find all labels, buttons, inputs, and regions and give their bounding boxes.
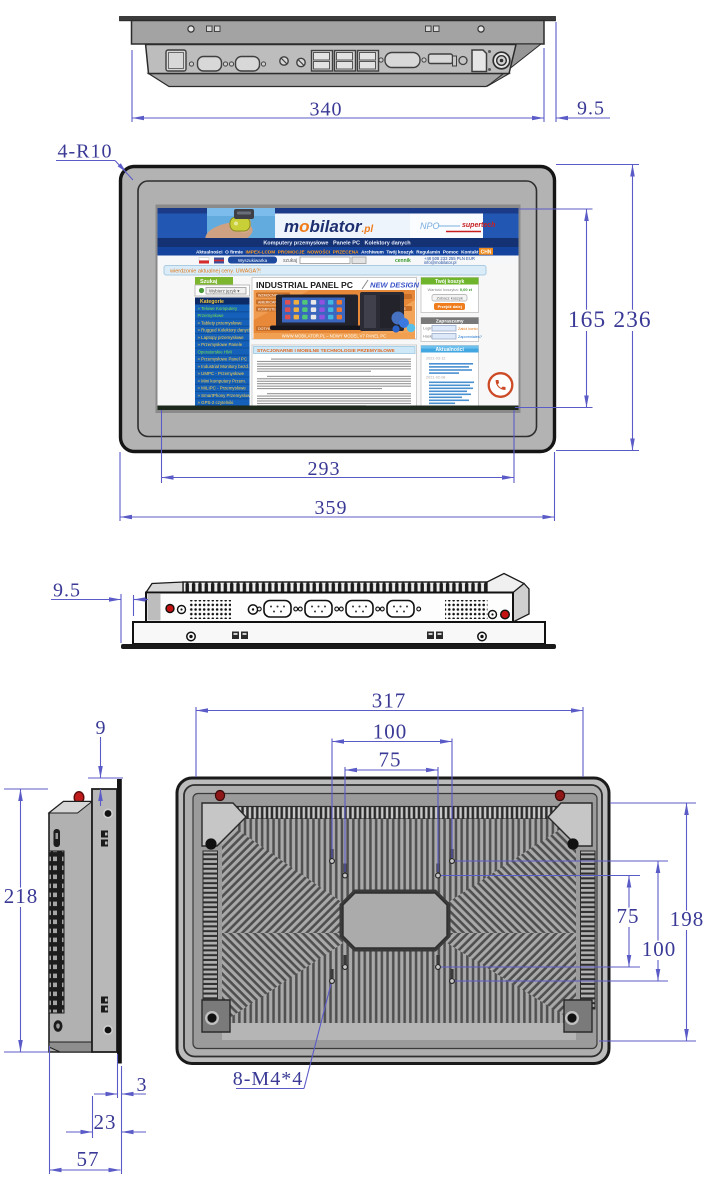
svg-text:Kategorie: Kategorie bbox=[200, 299, 224, 305]
svg-text:» Rugged Kolektory danych: » Rugged Kolektory danych bbox=[198, 328, 252, 333]
svg-text:359: 359 bbox=[315, 497, 348, 519]
svg-text:75: 75 bbox=[379, 748, 402, 772]
svg-text:317: 317 bbox=[372, 689, 407, 713]
svg-text:9.5: 9.5 bbox=[53, 580, 81, 602]
svg-text:57: 57 bbox=[77, 1147, 100, 1171]
svg-text:Zapraszamy: Zapraszamy bbox=[436, 319, 464, 325]
svg-text:» Przemysłowe Panele: » Przemysłowe Panele bbox=[198, 342, 243, 347]
svg-text:» SmartPhony Przemysłowe: » SmartPhony Przemysłowe bbox=[198, 393, 254, 398]
svg-text:INDUSTRIAL PANEL PC: INDUSTRIAL PANEL PC bbox=[256, 280, 353, 290]
svg-text:8-M4*4: 8-M4*4 bbox=[233, 1068, 303, 1090]
svg-text:23: 23 bbox=[94, 1110, 117, 1134]
svg-text:Przemysłowe: Przemysłowe bbox=[198, 313, 225, 318]
svg-text:NPO: NPO bbox=[420, 221, 440, 231]
svg-text:mobilator.pl: mobilator.pl bbox=[284, 217, 373, 236]
svg-text:2021-03-12: 2021-03-12 bbox=[426, 357, 445, 361]
svg-text:218: 218 bbox=[4, 884, 39, 908]
svg-text:Szukaj: Szukaj bbox=[200, 279, 218, 285]
svg-text:info@mobilator.pl: info@mobilator.pl bbox=[424, 260, 456, 265]
svg-text:STACJONARNE I MOBILNE TECHNOLO: STACJONARNE I MOBILNE TECHNOLOGIE PRZEMY… bbox=[257, 348, 395, 354]
svg-text:Przejdź dalej: Przejdź dalej bbox=[438, 304, 462, 309]
svg-text:165: 165 bbox=[568, 307, 606, 333]
svg-text:cennik: cennik bbox=[395, 258, 411, 264]
svg-text:» GPS-2 czytelniki: » GPS-2 czytelniki bbox=[198, 400, 234, 405]
svg-text:Zapomniałeś?: Zapomniałeś? bbox=[458, 335, 482, 339]
svg-text:2021-02-08: 2021-02-08 bbox=[426, 376, 445, 380]
svg-text:» MILIPC - Przemysłowe: » MILIPC - Przemysłowe bbox=[198, 386, 247, 391]
svg-text:Zobacz koszyk: Zobacz koszyk bbox=[436, 295, 462, 300]
svg-text:236: 236 bbox=[613, 307, 651, 333]
svg-text:szukaj: szukaj bbox=[283, 258, 297, 264]
svg-text:3: 3 bbox=[137, 1074, 148, 1096]
svg-text:340: 340 bbox=[310, 99, 343, 121]
svg-text:Twój koszyk: Twój koszyk bbox=[435, 279, 464, 285]
svg-text:» Przemysłowe Panel PC: » Przemysłowe Panel PC bbox=[198, 357, 248, 362]
svg-text:Aktualności O firmie IMPEX-L: Aktualności O firmie IMPEX-LCDM PROMOCJE… bbox=[196, 249, 479, 255]
svg-text:» Tablety przemysłowe: » Tablety przemysłowe bbox=[198, 320, 243, 325]
svg-text:75: 75 bbox=[617, 904, 640, 928]
svg-text:supertech: supertech bbox=[462, 222, 495, 229]
svg-text:9.5: 9.5 bbox=[577, 98, 605, 120]
svg-text:100: 100 bbox=[373, 720, 408, 744]
svg-text:9: 9 bbox=[96, 717, 107, 739]
svg-text:293: 293 bbox=[308, 458, 341, 480]
svg-text:WWW.MOBILATOR.PL – NOWY MODEL: WWW.MOBILATOR.PL – NOWY MODEL V7 PANEL P… bbox=[282, 334, 386, 339]
svg-text:Wybierz język ▾: Wybierz język ▾ bbox=[209, 289, 239, 294]
svg-text:» UMPC - Przemysłowe: » UMPC - Przemysłowe bbox=[198, 371, 245, 376]
svg-text:Aktualności: Aktualności bbox=[436, 347, 465, 353]
svg-text:4-R10: 4-R10 bbox=[58, 141, 113, 163]
svg-text:100: 100 bbox=[642, 937, 677, 961]
svg-text:CHN: CHN bbox=[481, 249, 492, 255]
svg-text:Załóż konto: Załóż konto bbox=[458, 327, 478, 331]
svg-text:Operatorskie HMI: Operatorskie HMI bbox=[198, 349, 232, 354]
svg-text:198: 198 bbox=[670, 907, 705, 931]
svg-text:» Tełowe Komputery: » Tełowe Komputery bbox=[198, 306, 239, 311]
svg-text:Wartość koszyka: 0,00 zł: Wartość koszyka: 0,00 zł bbox=[428, 287, 473, 292]
svg-text:» Laptopy przemysłowe: » Laptopy przemysłowe bbox=[198, 335, 245, 340]
svg-text:AMERICAN: AMERICAN bbox=[258, 301, 277, 305]
svg-text:wierdzonie aktualnej ceny. UWA: wierdzonie aktualnej ceny. UWAGA?! bbox=[169, 268, 261, 274]
svg-text:Wyszukiwarka: Wyszukiwarka bbox=[238, 258, 268, 263]
svg-text:NEW DESIGN: NEW DESIGN bbox=[370, 281, 419, 290]
svg-text:» Mini komputery Przem.: » Mini komputery Przem. bbox=[198, 378, 247, 383]
svg-text:» Industrial Monitory bezd.: » Industrial Monitory bezd. bbox=[198, 364, 250, 369]
svg-text:Komputery przemysłowe Panele: Komputery przemysłowe Panele PC Kolektor… bbox=[263, 241, 411, 247]
